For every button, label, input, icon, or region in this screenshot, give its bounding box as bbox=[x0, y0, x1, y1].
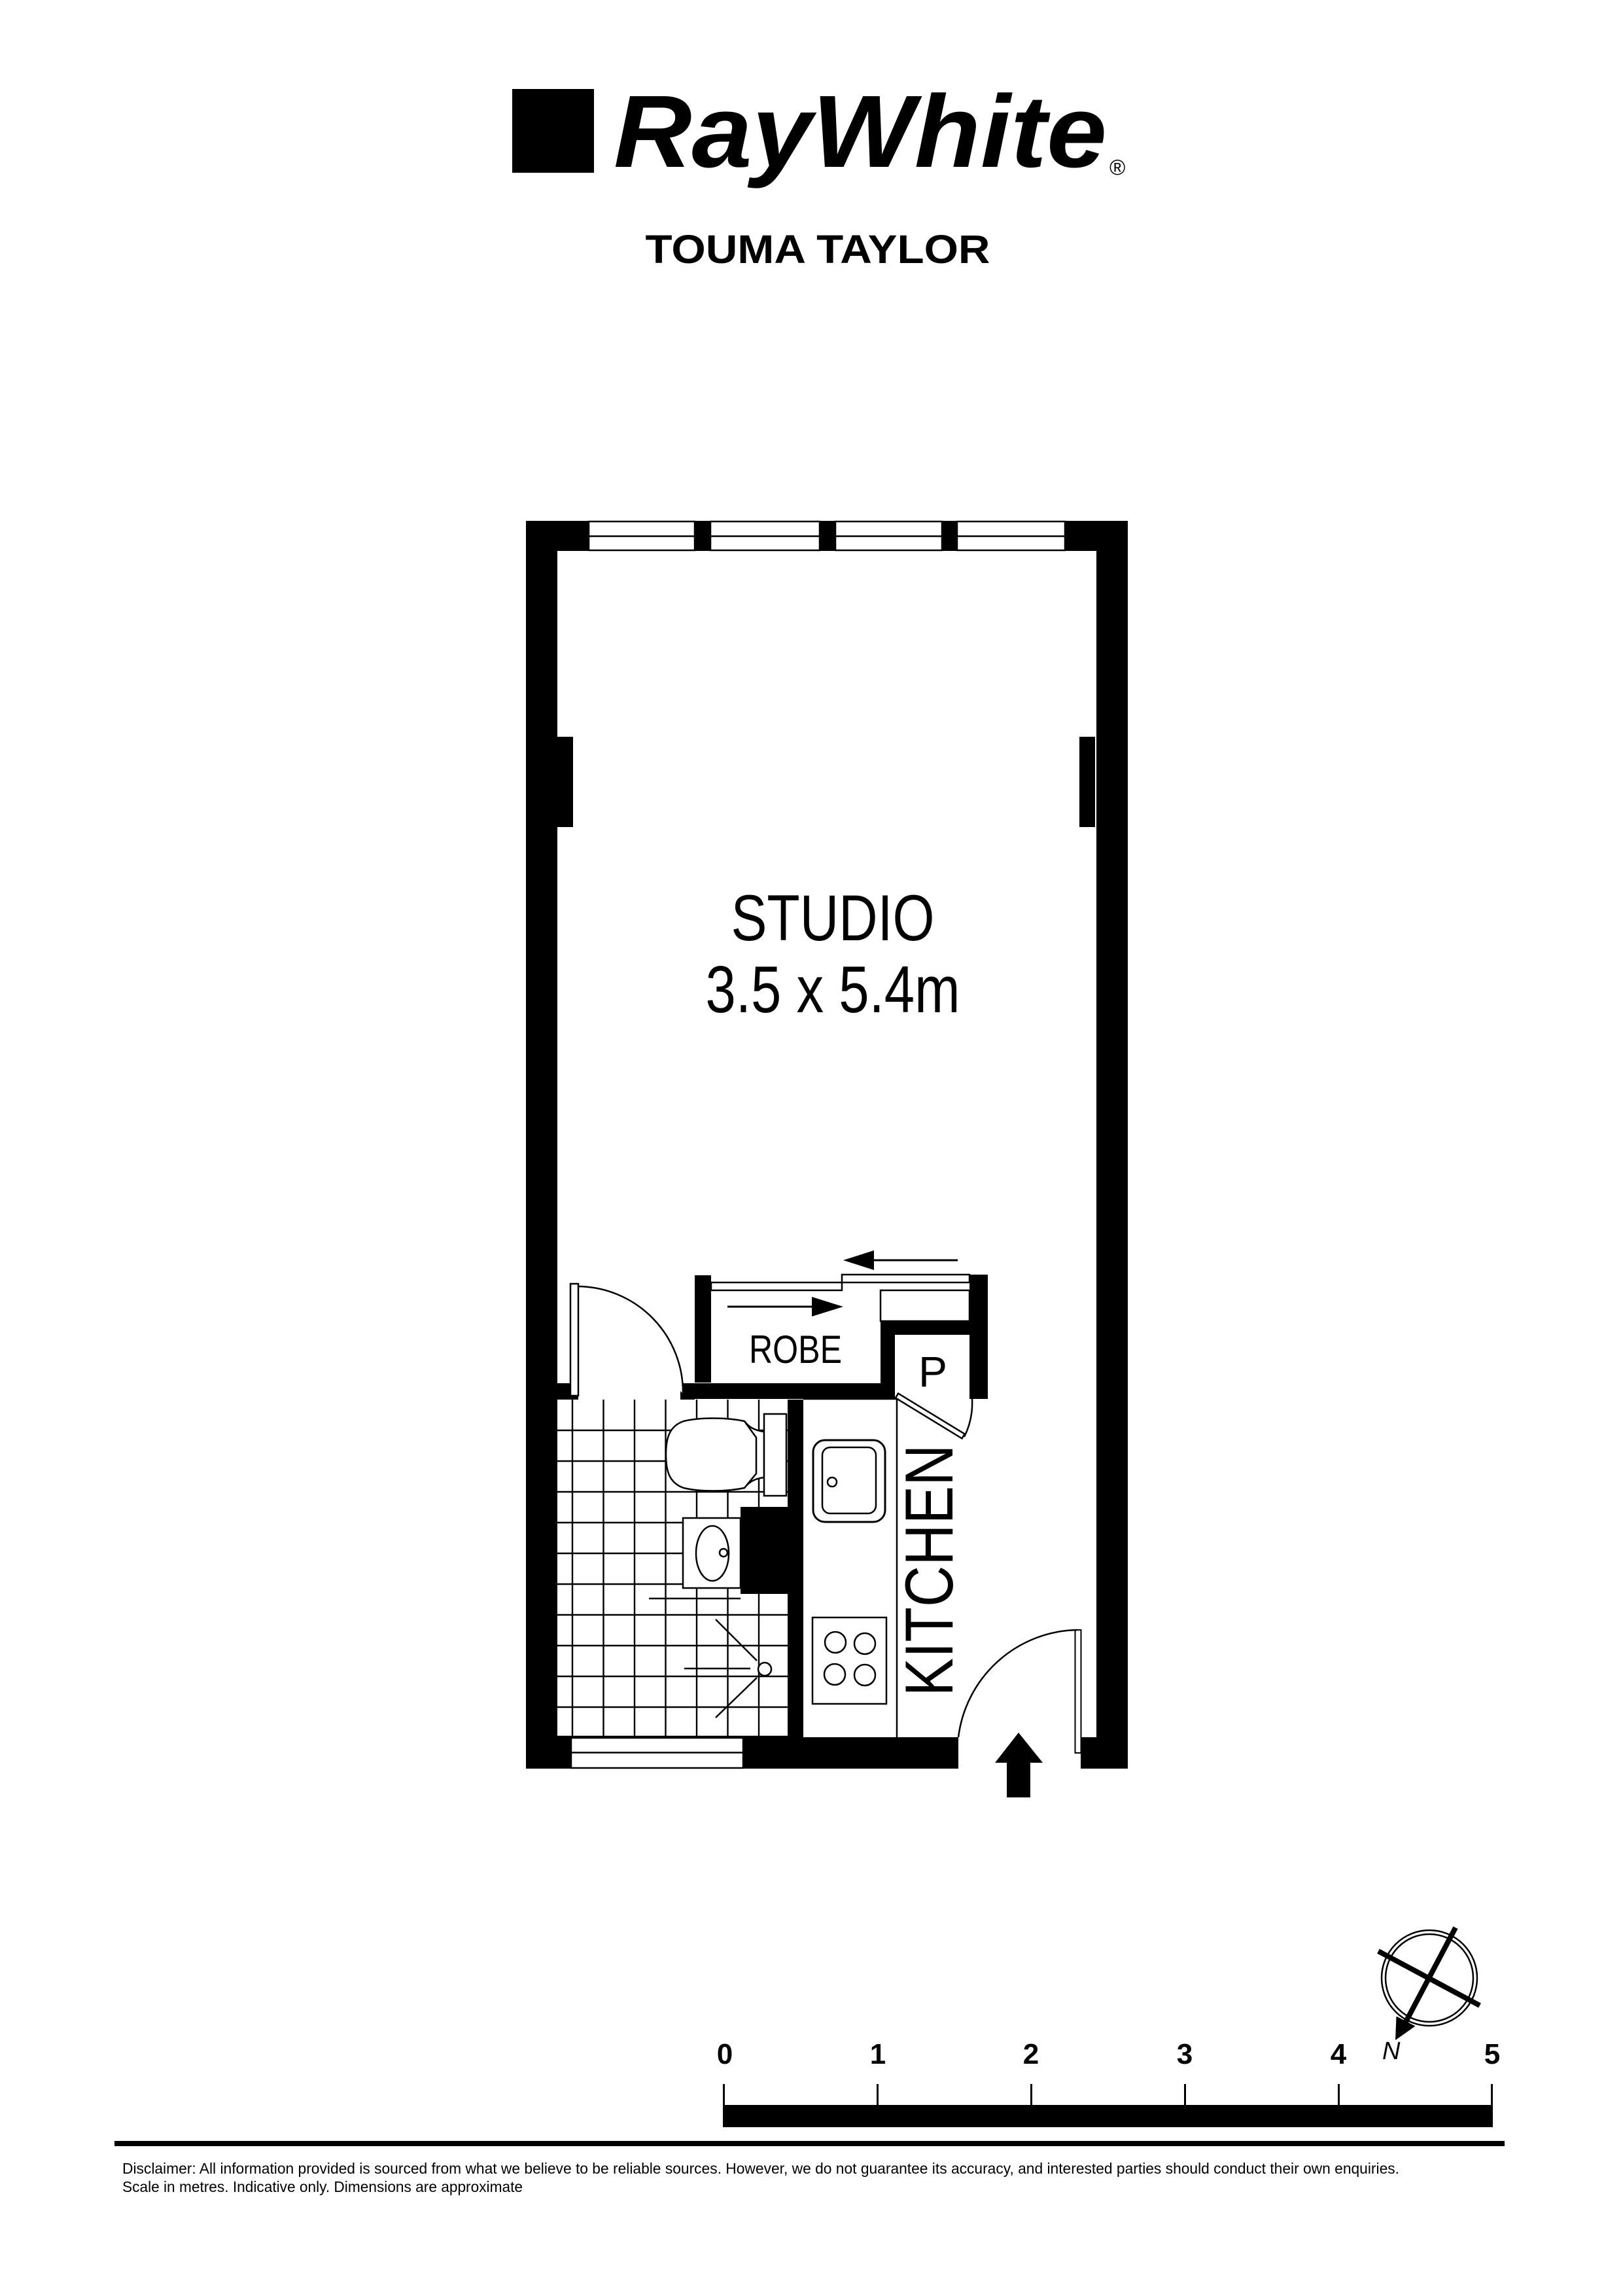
svg-text:0: 0 bbox=[717, 2038, 733, 2070]
svg-text:RayWhite: RayWhite bbox=[614, 75, 1107, 189]
svg-text:3.5 x 5.4m: 3.5 x 5.4m bbox=[706, 953, 960, 1027]
svg-text:1: 1 bbox=[870, 2038, 886, 2070]
svg-text:4: 4 bbox=[1331, 2038, 1347, 2070]
svg-text:KITCHEN: KITCHEN bbox=[892, 1445, 968, 1697]
svg-text:STUDIO: STUDIO bbox=[731, 881, 935, 954]
svg-text:N: N bbox=[1382, 2038, 1401, 2065]
svg-text:®: ® bbox=[1109, 155, 1125, 179]
svg-text:3: 3 bbox=[1177, 2038, 1193, 2070]
svg-text:P: P bbox=[918, 1347, 947, 1396]
svg-text:Disclaimer: All information pr: Disclaimer: All information provided is … bbox=[122, 2160, 1399, 2177]
svg-text:TOUMA TAYLOR: TOUMA TAYLOR bbox=[646, 227, 990, 272]
svg-text:ROBE: ROBE bbox=[749, 1328, 842, 1371]
svg-text:2: 2 bbox=[1023, 2038, 1039, 2070]
svg-text:5: 5 bbox=[1484, 2038, 1500, 2070]
svg-text:Scale in metres. Indicative on: Scale in metres. Indicative only. Dimens… bbox=[122, 2178, 523, 2195]
